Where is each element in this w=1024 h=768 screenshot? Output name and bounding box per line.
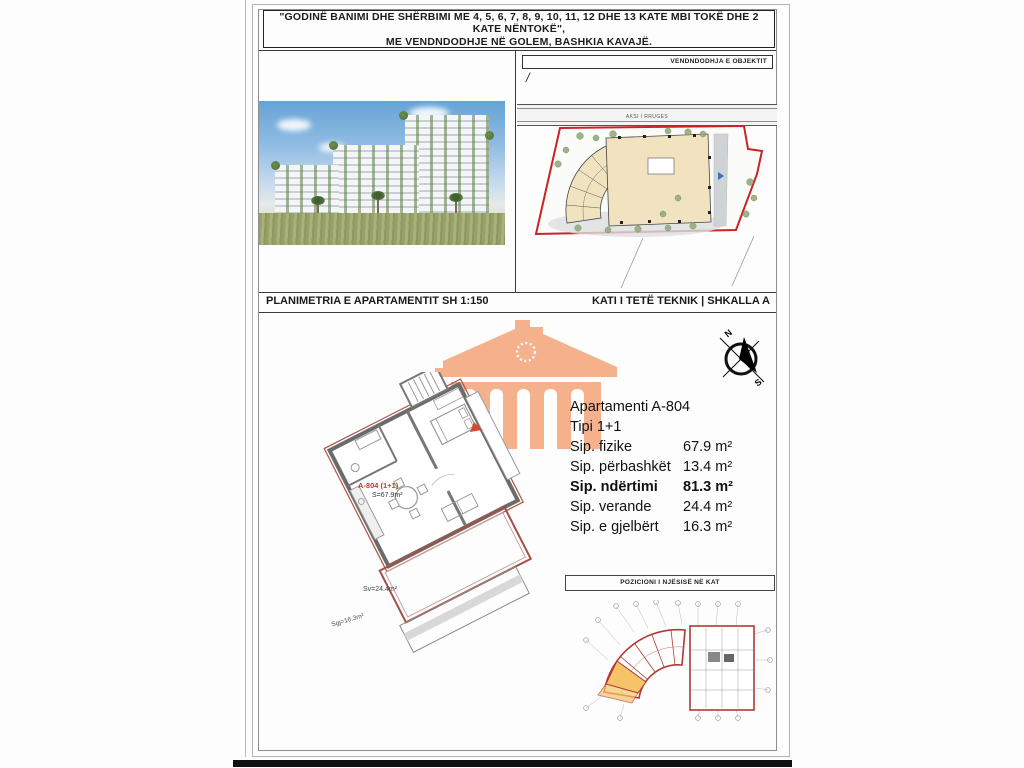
info-value: 24.4 m²: [683, 497, 732, 517]
plan-unit-label: A-804 (1+1): [358, 481, 398, 490]
section-band-top-line: [259, 292, 776, 293]
plan-veranda-label: Sv=24.4m²: [363, 586, 397, 593]
site-location-label: VENDNDODHJA E OBJEKTIT: [522, 55, 773, 69]
compass-s: S: [753, 377, 764, 389]
info-row: Sip. verande 24.4 m²: [570, 497, 778, 517]
keyplan-drawing: [578, 600, 776, 722]
building-render-image: [259, 101, 505, 245]
north-compass: N S: [712, 328, 770, 390]
sheet-bottom-bar: [233, 760, 792, 767]
project-title-line2: ME VENDNDODHJE NË GOLEM, BASHKIA KAVAJË.: [386, 36, 652, 48]
project-title-line1: "GODINË BANIMI DHE SHËRBIMI ME 4, 5, 6, …: [264, 11, 774, 35]
site-plan-drawing: [518, 126, 777, 290]
palm-tree: [311, 196, 325, 205]
palm-tree: [449, 193, 463, 202]
apartment-info-block: Apartamenti A-804 Tipi 1+1 Sip. fizike 6…: [570, 397, 778, 537]
road-line: [517, 108, 777, 109]
section-title-right: KATI I TETË TEKNIK | SHKALLA A: [515, 295, 770, 307]
section-title-left: PLANIMETRIA E APARTAMENTIT SH 1:150: [266, 295, 488, 307]
info-label: Sip. përbashkët: [570, 457, 683, 477]
info-label: Sip. ndërtimi: [570, 477, 683, 497]
apartment-id: Apartamenti A-804: [570, 397, 778, 417]
site-block: [606, 134, 711, 226]
building-greenery: [275, 165, 339, 215]
panel-divider: [515, 50, 516, 292]
keyplan-core: [708, 652, 720, 662]
info-value: 67.9 m²: [683, 437, 732, 457]
cloud: [277, 119, 311, 131]
binder-spine-line: [245, 0, 246, 757]
vegetation: [329, 141, 338, 150]
divider-under-title: [259, 50, 776, 51]
building-greenery: [333, 145, 419, 215]
info-row: Sip. e gjelbërt 16.3 m²: [570, 517, 778, 537]
vegetation: [485, 131, 494, 140]
project-title-box: "GODINË BANIMI DHE SHËRBIMI ME 4, 5, 6, …: [263, 10, 775, 48]
info-value: 16.3 m²: [683, 517, 732, 537]
unit-walls: [330, 384, 518, 566]
road-strip: AKSI I RRUGES: [517, 104, 777, 126]
road-axis-label: AKSI I RRUGES: [517, 114, 777, 120]
palm-tree: [371, 191, 385, 200]
apartment-type: Tipi 1+1: [570, 417, 778, 437]
info-label: Sip. e gjelbërt: [570, 517, 683, 537]
parcel-lines: [621, 236, 754, 288]
site-slash-mark: /: [526, 70, 530, 85]
info-value: 13.4 m²: [683, 457, 732, 477]
info-row: Sip. fizike 67.9 m²: [570, 437, 778, 457]
render-ground: [259, 213, 505, 245]
green-strip-path: [404, 575, 523, 641]
info-row: Sip. ndërtimi 81.3 m²: [570, 477, 778, 497]
plan-area-label: S=67.9m²: [372, 492, 403, 499]
vegetation: [271, 161, 280, 170]
vegetation: [399, 111, 408, 120]
info-label: Sip. fizike: [570, 437, 683, 457]
compass-n: N: [723, 328, 734, 339]
section-band-bottom-line: [259, 312, 776, 313]
keyplan-title: POZICIONI I NJËSISË NË KAT: [565, 575, 775, 591]
info-row: Sip. përbashkët 13.4 m²: [570, 457, 778, 477]
info-value: 81.3 m²: [683, 477, 733, 497]
apartment-floor-plan: [260, 372, 580, 672]
site-inner-road: [714, 134, 728, 226]
plan-rotated-group: [302, 372, 570, 652]
keyplan-core: [724, 654, 734, 662]
road-line: [517, 121, 777, 122]
block-notch: [648, 158, 674, 174]
info-label: Sip. verande: [570, 497, 683, 517]
